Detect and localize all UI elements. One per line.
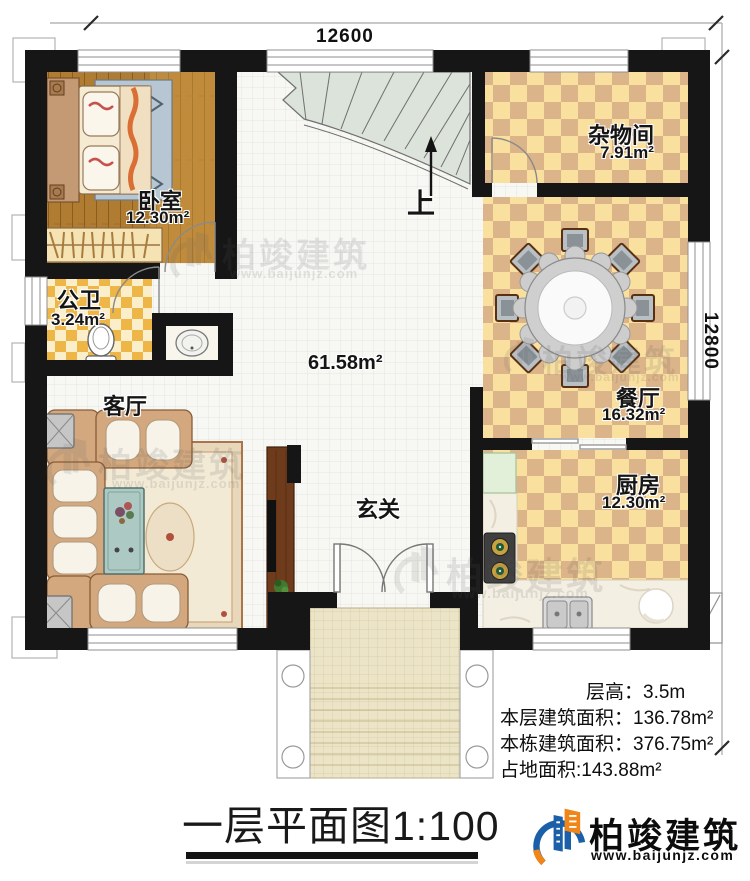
stat-floor-area: 本层建筑面积：136.78m²	[500, 703, 713, 730]
room-label-foyer: 玄关	[356, 492, 400, 524]
brand-logo-icon	[532, 804, 588, 870]
kitchen-bowl	[639, 589, 673, 623]
watermark-site: www.baijunjz.com	[230, 266, 358, 281]
stat-total-area: 本栋建筑面积：376.75m²	[500, 729, 713, 756]
room-area-kitchen: 12.30m²	[602, 493, 665, 513]
room-area-bedroom: 12.30m²	[126, 208, 189, 228]
brand-website: www.baijunjz.com	[591, 847, 734, 863]
watermark-logo-icon	[502, 334, 540, 376]
title-underline-light	[186, 861, 478, 864]
dimension-right-label: 12800	[699, 312, 721, 370]
dimension-top-label: 12600	[316, 26, 374, 48]
coffee-table	[104, 488, 144, 574]
floor-plan-page: 柏竣建筑 www.baijunjz.com 柏竣建筑 www.baijunjz.…	[0, 0, 750, 881]
watermark-logo-icon	[168, 228, 216, 282]
watermark-logo-icon	[392, 542, 442, 598]
plan-title: 一层平面图1:100	[182, 792, 500, 852]
tv	[267, 500, 276, 572]
room-area-bathroom: 3.24m²	[51, 310, 105, 330]
watermark-site: www.baijunjz.com	[112, 476, 240, 491]
watermark-logo-icon	[44, 434, 94, 490]
bedroom-furniture	[40, 78, 172, 262]
room-label-living: 客厅	[103, 389, 147, 421]
room-area-dining: 16.32m²	[602, 405, 665, 425]
room-area-storage: 7.91m²	[600, 143, 654, 163]
stat-floor-height: 层高：3.5m	[586, 677, 685, 704]
stat-footprint: 占地面积:143.88m²	[500, 755, 662, 782]
title-underline	[186, 852, 478, 859]
hall-area-label: 61.58m²	[308, 352, 383, 375]
stair-up-label: 上	[407, 182, 435, 222]
fridge	[483, 453, 516, 493]
watermark-site: www.baijunjz.com	[452, 585, 589, 601]
kitchen-sink	[543, 597, 592, 632]
